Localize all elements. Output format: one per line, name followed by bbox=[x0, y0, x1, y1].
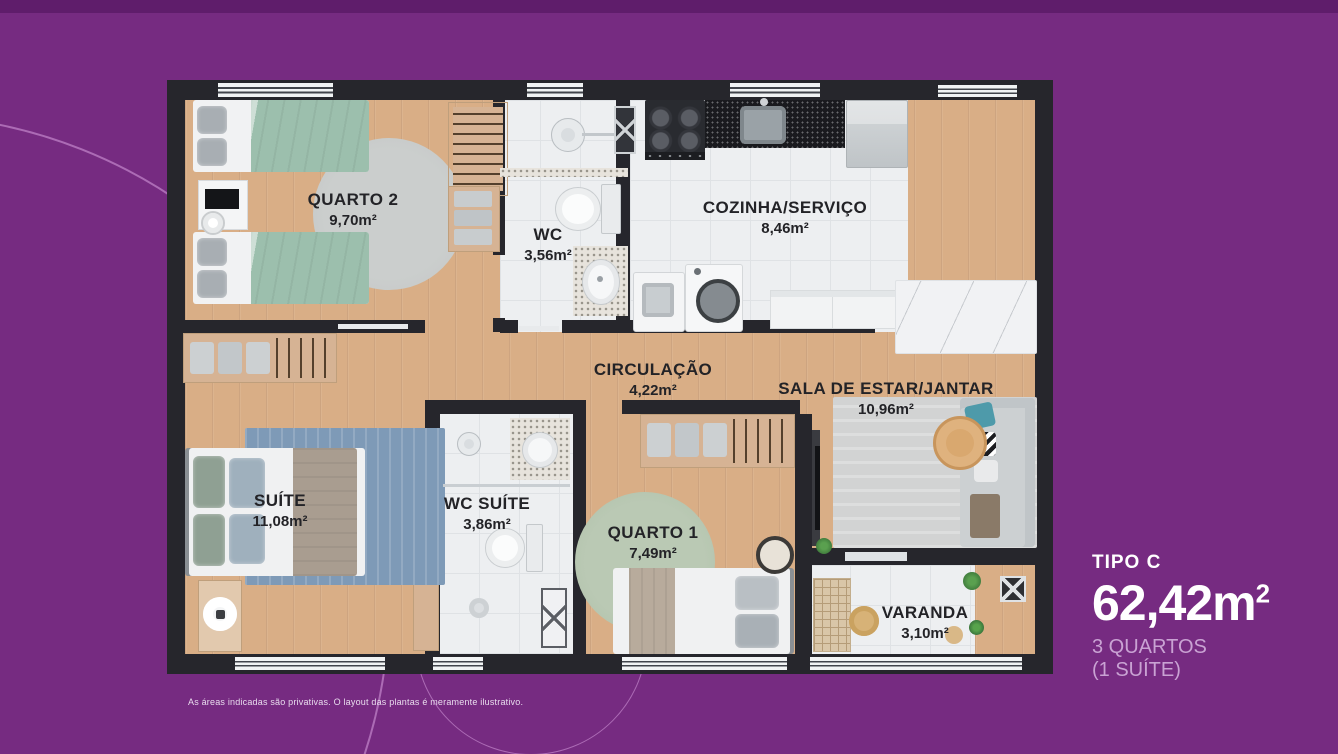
pillow bbox=[193, 514, 225, 566]
sofa-throw bbox=[970, 494, 1000, 538]
desk-stool bbox=[201, 211, 225, 235]
room-label-cozinha: COZINHA/SERVIÇO 8,46m² bbox=[703, 197, 867, 239]
area-value: 62,42m bbox=[1092, 575, 1256, 631]
room-label-sala: SALA DE ESTAR/JANTAR 10,96m² bbox=[778, 378, 993, 420]
bed-runner bbox=[629, 568, 675, 654]
room-label-wc-suite: WC SUÍTE 3,86m² bbox=[444, 493, 530, 535]
wc-suite-vanity bbox=[510, 418, 570, 480]
folded-clothes bbox=[703, 423, 727, 457]
wall-quarto1-top bbox=[622, 400, 800, 414]
door-quarto2 bbox=[338, 324, 408, 329]
window-wc-suite bbox=[433, 657, 483, 670]
room-label-suite: SUÍTE 11,08m² bbox=[252, 490, 307, 532]
room-area: 7,49m² bbox=[608, 544, 699, 564]
wardrobe-quarto2 bbox=[448, 102, 508, 196]
folded-linen bbox=[454, 229, 492, 245]
plan-type-label: TIPO C bbox=[1092, 552, 1269, 574]
area-superscript: 2 bbox=[1256, 578, 1269, 608]
kitchen-sink bbox=[740, 106, 786, 144]
room-area: 3,10m² bbox=[882, 624, 969, 644]
info-panel: TIPO C 62,42m2 3 QUARTOS (1 SUÍTE) bbox=[1092, 552, 1269, 682]
single-bed-2 bbox=[193, 232, 369, 304]
room-area: 3,56m² bbox=[524, 246, 572, 266]
room-label-circulacao: CIRCULAÇÃO 4,22m² bbox=[594, 359, 712, 401]
kitchen-counter bbox=[705, 100, 845, 148]
washing-machine bbox=[685, 264, 743, 332]
plan-suite-count: (1 SUÍTE) bbox=[1092, 659, 1269, 682]
top-accent-band bbox=[0, 0, 1338, 13]
disclaimer-text: As áreas indicadas são privativas. O lay… bbox=[188, 697, 523, 707]
room-area: 11,08m² bbox=[252, 512, 307, 532]
page: QUARTO 2 9,70m² WC 3,56m² COZINHA/SERVIÇ… bbox=[0, 0, 1338, 754]
room-name: VARANDA bbox=[882, 602, 969, 624]
linen-hatch bbox=[541, 588, 567, 648]
folded-clothes bbox=[190, 342, 214, 374]
hanger-rail bbox=[733, 419, 789, 463]
nightstand-round bbox=[756, 536, 794, 574]
room-label-quarto1: QUARTO 1 7,49m² bbox=[608, 522, 699, 564]
wardrobe-quarto1 bbox=[640, 414, 795, 468]
faucet bbox=[597, 276, 603, 282]
wardrobe-quarto2-shelves bbox=[448, 186, 500, 252]
suite-dresser bbox=[198, 580, 242, 652]
wardrobe-suite bbox=[183, 333, 337, 383]
wc-vanity bbox=[573, 246, 628, 316]
folded-clothes bbox=[675, 423, 699, 457]
washer-door bbox=[696, 279, 740, 323]
room-name: QUARTO 1 bbox=[608, 522, 699, 544]
room-name: WC SUÍTE bbox=[444, 493, 530, 515]
varanda-railing bbox=[810, 657, 1022, 670]
wall-right bbox=[1035, 80, 1053, 674]
toilet-tank bbox=[601, 184, 621, 234]
window-quarto2 bbox=[218, 83, 333, 97]
wc-mosaic-strip bbox=[500, 168, 628, 177]
pillow bbox=[735, 614, 779, 648]
kitchen-faucet bbox=[760, 98, 768, 106]
tv bbox=[205, 189, 239, 209]
plant bbox=[963, 572, 981, 590]
washer-knob bbox=[694, 268, 701, 275]
pillow bbox=[197, 138, 227, 166]
pillow bbox=[735, 576, 779, 610]
folded-clothes bbox=[218, 342, 242, 374]
jute-rug bbox=[849, 606, 879, 636]
window-wc bbox=[527, 83, 583, 97]
stove-control-strip bbox=[645, 152, 705, 160]
dining-table bbox=[895, 280, 1037, 354]
window-quarto1 bbox=[622, 657, 787, 670]
room-label-wc: WC 3,56m² bbox=[524, 224, 572, 266]
tv bbox=[815, 446, 820, 530]
wall-wc-bottom-right bbox=[562, 320, 630, 333]
folded-linen bbox=[454, 210, 492, 226]
wall-quarto1-sala bbox=[795, 414, 812, 654]
laundry-tank bbox=[633, 272, 685, 332]
bed-blanket bbox=[251, 100, 369, 172]
room-name: COZINHA/SERVIÇO bbox=[703, 197, 867, 219]
stove bbox=[645, 100, 705, 160]
wall-sala-varanda bbox=[795, 548, 1035, 565]
room-name: CIRCULAÇÃO bbox=[594, 359, 712, 381]
room-name: SUÍTE bbox=[252, 490, 307, 512]
room-name: SALA DE ESTAR/JANTAR bbox=[778, 378, 993, 400]
duct-hatch bbox=[614, 106, 636, 154]
shower-glass bbox=[443, 484, 570, 487]
varanda-bench bbox=[813, 578, 851, 652]
tv-panel bbox=[812, 430, 820, 546]
room-area: 10,96m² bbox=[778, 400, 993, 420]
single-bed-1 bbox=[193, 100, 369, 172]
room-label-varanda: VARANDA 3,10m² bbox=[882, 602, 969, 644]
coffee-table bbox=[933, 416, 987, 470]
shower-arm bbox=[582, 133, 614, 136]
window-suite bbox=[235, 657, 385, 670]
window-sala bbox=[938, 85, 1017, 97]
dresser-mirror bbox=[203, 597, 237, 631]
kitchen-lower-cabinets bbox=[770, 290, 897, 329]
room-area: 4,22m² bbox=[594, 381, 712, 401]
wall-wc-suite-top bbox=[425, 400, 586, 414]
varanda-sliding-door bbox=[845, 552, 907, 561]
pillow bbox=[197, 238, 227, 266]
hanger-rail bbox=[276, 338, 332, 378]
tank-basin bbox=[642, 283, 674, 317]
fridge bbox=[846, 100, 908, 168]
room-area: 8,46m² bbox=[703, 219, 867, 239]
room-label-quarto2: QUARTO 2 9,70m² bbox=[308, 189, 399, 231]
pillow bbox=[193, 456, 225, 508]
pillow bbox=[197, 270, 227, 298]
mirror-center bbox=[216, 610, 225, 619]
washbasin bbox=[522, 432, 558, 468]
double-bed-quarto1 bbox=[613, 568, 790, 654]
folded-clothes bbox=[647, 423, 671, 457]
plan-bedrooms: 3 QUARTOS bbox=[1092, 636, 1269, 659]
shower-head bbox=[457, 432, 481, 456]
washbasin bbox=[582, 259, 620, 305]
window-kitchen bbox=[730, 83, 820, 97]
plant bbox=[969, 620, 984, 635]
bed-blanket bbox=[251, 232, 369, 304]
folded-clothes bbox=[246, 342, 270, 374]
plan-total-area: 62,42m2 bbox=[1092, 577, 1269, 630]
door-wc bbox=[519, 326, 559, 331]
folded-linen bbox=[454, 191, 492, 207]
room-area: 9,70m² bbox=[308, 211, 399, 231]
ac-unit bbox=[1000, 576, 1026, 602]
room-area: 3,86m² bbox=[444, 515, 530, 535]
desk bbox=[198, 180, 248, 230]
wall-wc-bottom-left bbox=[500, 320, 518, 333]
room-name: WC bbox=[524, 224, 572, 246]
pillow bbox=[197, 106, 227, 134]
room-name: QUARTO 2 bbox=[308, 189, 399, 211]
plant bbox=[816, 538, 832, 554]
floor-drain bbox=[469, 598, 489, 618]
floor-plan: QUARTO 2 9,70m² WC 3,56m² COZINHA/SERVIÇ… bbox=[167, 80, 1053, 674]
shower-head bbox=[551, 118, 585, 152]
